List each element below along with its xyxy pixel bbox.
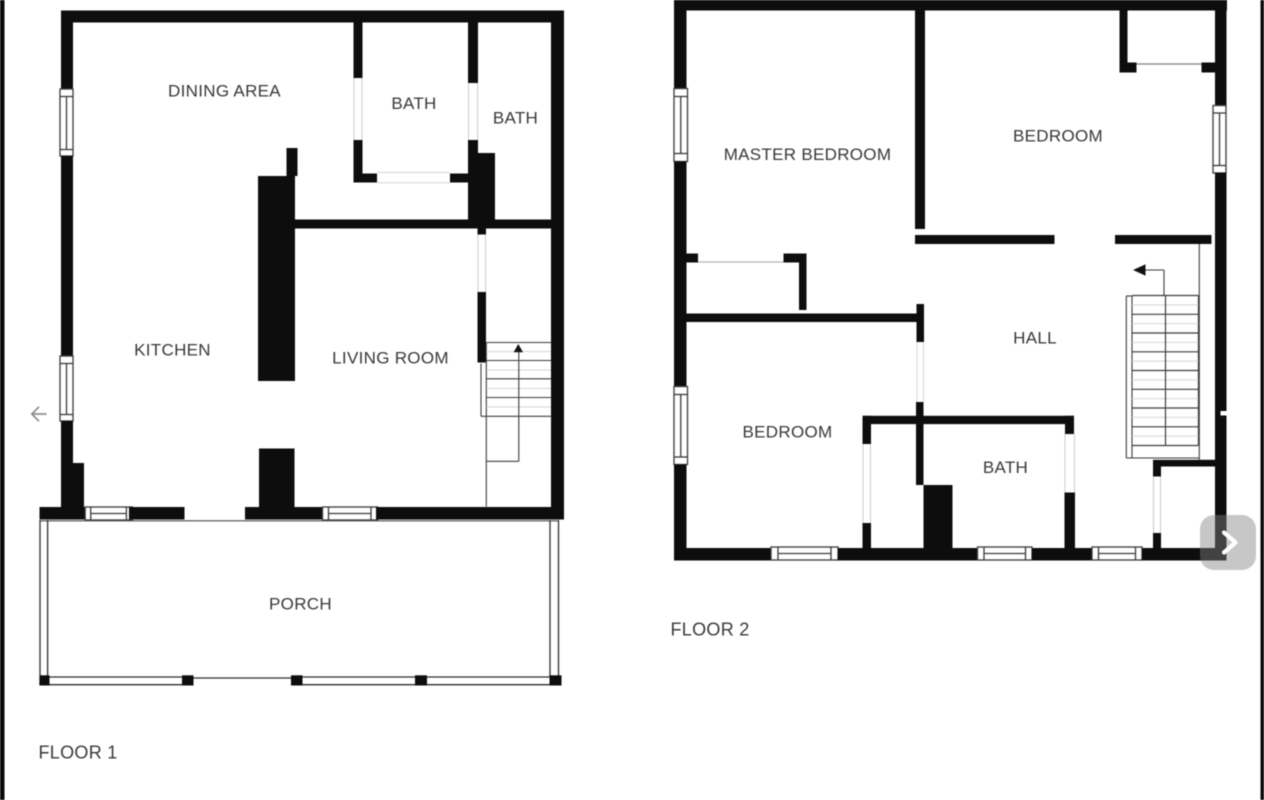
svg-text:BATH: BATH: [493, 109, 538, 128]
svg-text:KITCHEN: KITCHEN: [134, 341, 211, 360]
svg-text:BEDROOM: BEDROOM: [1013, 127, 1103, 146]
svg-text:BATH: BATH: [391, 94, 436, 113]
svg-text:BEDROOM: BEDROOM: [743, 423, 833, 442]
svg-text:LIVING ROOM: LIVING ROOM: [332, 349, 449, 368]
svg-text:FLOOR 1: FLOOR 1: [39, 743, 118, 763]
svg-text:FLOOR 2: FLOOR 2: [671, 620, 750, 640]
svg-text:PORCH: PORCH: [269, 595, 332, 614]
svg-text:DINING AREA: DINING AREA: [168, 82, 281, 101]
svg-text:BATH: BATH: [983, 458, 1028, 477]
svg-text:HALL: HALL: [1013, 329, 1057, 348]
svg-text:MASTER BEDROOM: MASTER BEDROOM: [724, 145, 892, 164]
